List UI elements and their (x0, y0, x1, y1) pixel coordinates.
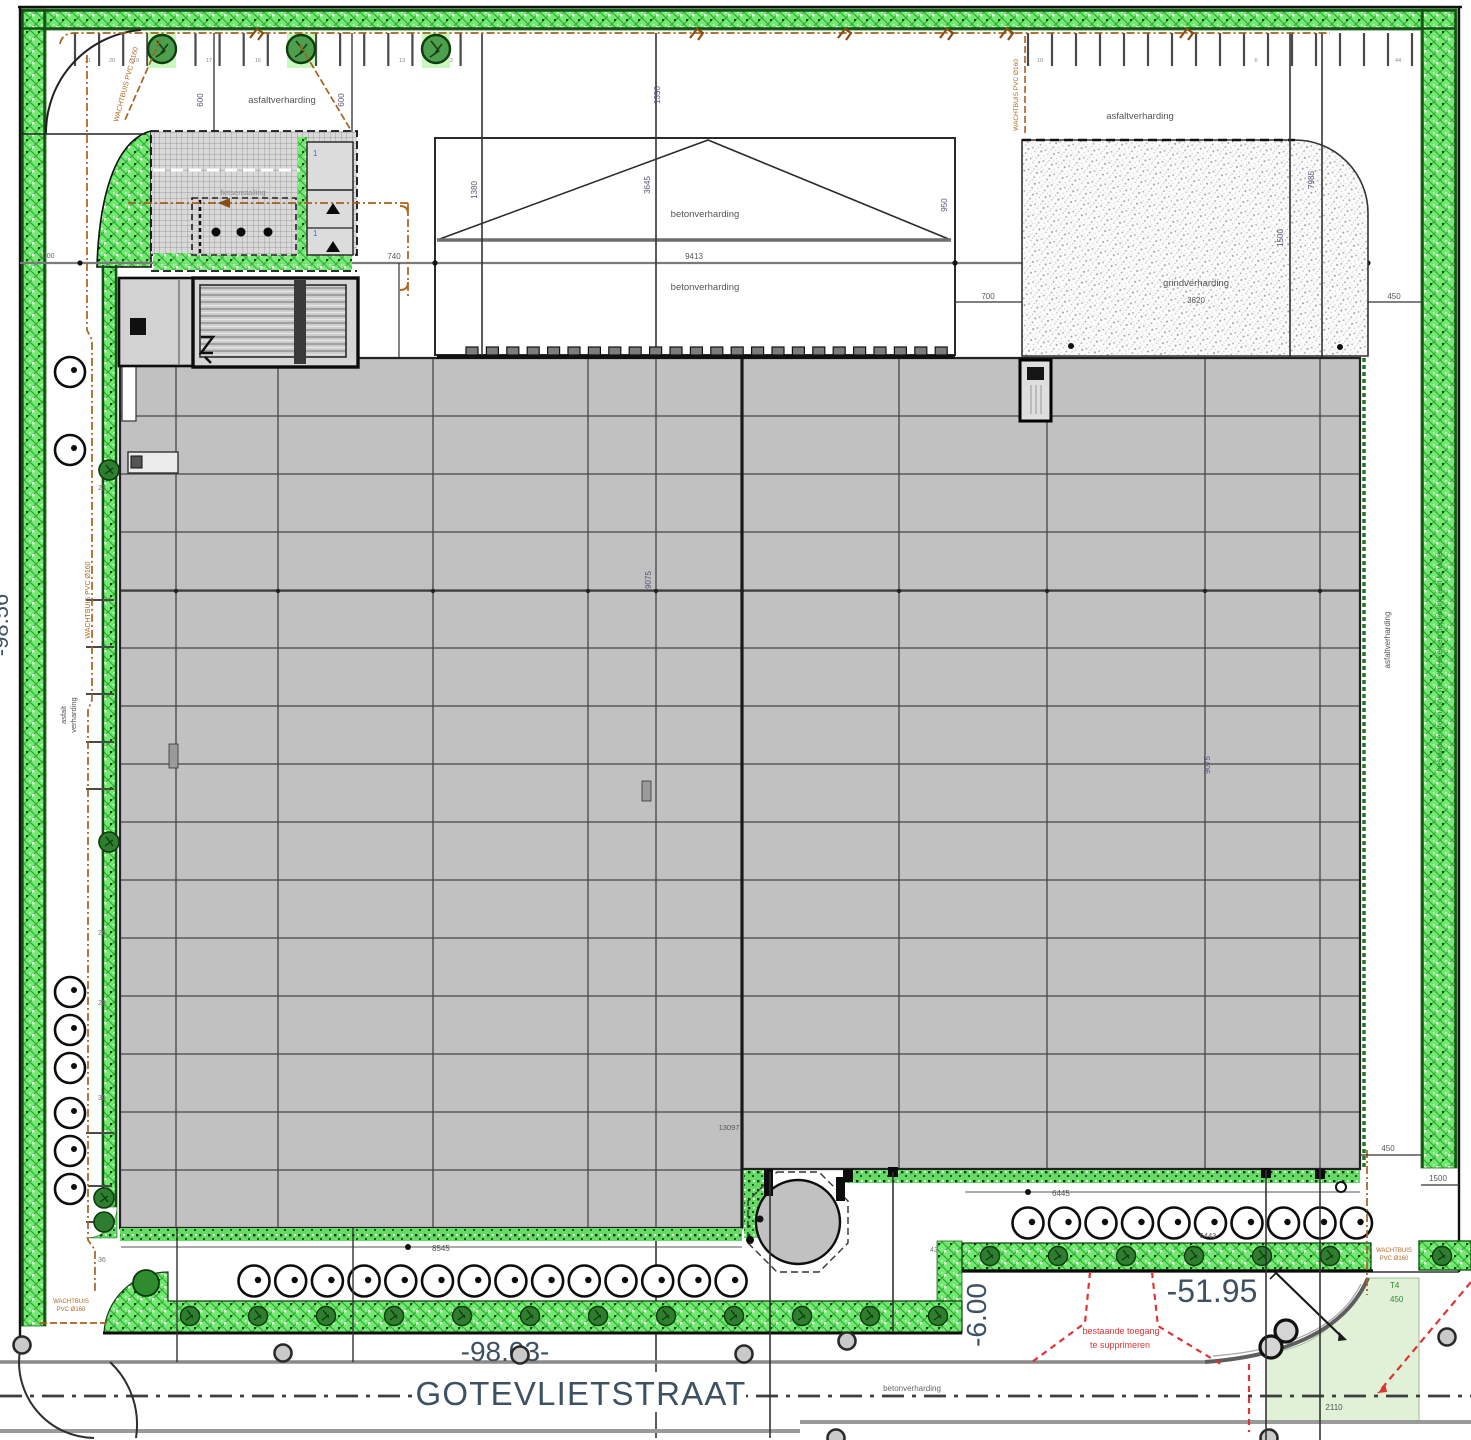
svg-text:29: 29 (98, 1000, 106, 1007)
svg-text:36: 36 (98, 1257, 106, 1264)
svg-text:20: 20 (109, 58, 115, 64)
svg-text:30: 30 (98, 1095, 106, 1102)
svg-text:asfaltverharding: asfaltverharding (1383, 612, 1392, 669)
svg-text:450: 450 (1387, 292, 1401, 301)
svg-text:1: 1 (313, 229, 318, 238)
svg-text:-51.95: -51.95 (1167, 1273, 1258, 1309)
svg-text:3645: 3645 (643, 176, 652, 194)
svg-text:21: 21 (85, 58, 91, 64)
svg-text:1: 1 (313, 149, 318, 158)
svg-text:verharding: verharding (69, 697, 78, 732)
svg-text:44: 44 (1395, 58, 1401, 64)
svg-text:PVC Ø160: PVC Ø160 (57, 1307, 86, 1313)
svg-text:asfalt: asfalt (59, 705, 68, 724)
svg-text:450: 450 (1390, 1295, 1404, 1304)
svg-text:te supprimeren: te supprimeren (1090, 1340, 1150, 1350)
svg-text:17: 17 (206, 58, 212, 64)
svg-text:23: 23 (98, 485, 106, 492)
svg-text:9075: 9075 (1203, 756, 1212, 774)
svg-text:26: 26 (98, 930, 106, 937)
svg-text:asfaltverharding: asfaltverharding (248, 95, 316, 106)
svg-text:450: 450 (1381, 1144, 1395, 1153)
svg-text:betonverharding: betonverharding (671, 209, 740, 220)
svg-text:3620: 3620 (1187, 296, 1205, 305)
svg-text:8545: 8545 (432, 1244, 450, 1253)
svg-text:betonverharding: betonverharding (883, 1384, 941, 1393)
svg-text:10: 10 (1037, 58, 1043, 64)
svg-text:WACHTBUIS PVC Ø160: WACHTBUIS PVC Ø160 (85, 561, 92, 638)
svg-text:-98.03-: -98.03- (461, 1336, 550, 1367)
svg-text:2110: 2110 (1325, 1403, 1343, 1412)
svg-text:13097: 13097 (719, 1123, 740, 1132)
svg-text:6: 6 (1254, 58, 1257, 64)
svg-text:740: 740 (387, 252, 401, 261)
svg-text:9075: 9075 (644, 571, 653, 589)
svg-text:fietsenstalling: fietsenstalling (220, 188, 265, 197)
svg-text:betonverharding: betonverharding (671, 282, 740, 293)
svg-text:WACHTBUIS: WACHTBUIS (1376, 1248, 1412, 1254)
svg-text:1350: 1350 (653, 86, 662, 104)
svg-text:bestaande groenzone met streek: bestaande groenzone met streekeigen bepl… (1435, 548, 1444, 771)
svg-text:9413: 9413 (685, 252, 703, 261)
svg-text:WACHTBUIS PVC Ø160: WACHTBUIS PVC Ø160 (1013, 59, 1020, 131)
svg-text:-6.00: -6.00 (961, 1283, 992, 1347)
svg-text:1380: 1380 (470, 181, 479, 199)
svg-text:grindverharding: grindverharding (1163, 278, 1229, 289)
svg-text:16: 16 (255, 58, 261, 64)
svg-text:1500: 1500 (1276, 229, 1285, 247)
svg-text:43: 43 (930, 1247, 938, 1254)
svg-text:T4: T4 (1390, 1281, 1400, 1290)
svg-text:6445: 6445 (1052, 1189, 1070, 1198)
svg-text:7985: 7985 (1307, 171, 1316, 189)
svg-text:1000: 1000 (39, 253, 55, 260)
svg-text:600: 600 (337, 93, 346, 107)
svg-text:bestaande toegang: bestaande toegang (1082, 1326, 1159, 1336)
svg-text:13: 13 (399, 58, 405, 64)
svg-text:PVC Ø160: PVC Ø160 (1380, 1256, 1409, 1262)
svg-text:WACHTBUIS: WACHTBUIS (53, 1299, 89, 1305)
svg-text:600: 600 (196, 93, 205, 107)
svg-text:-98.56: -98.56 (0, 594, 13, 656)
svg-text:GOTEVLIETSTRAAT: GOTEVLIETSTRAAT (416, 1375, 747, 1412)
svg-text:950: 950 (940, 198, 949, 212)
svg-text:700: 700 (981, 292, 995, 301)
svg-text:1500: 1500 (1429, 1174, 1447, 1183)
svg-text:asfaltverharding: asfaltverharding (1106, 111, 1174, 122)
svg-text:6443: 6443 (1200, 1231, 1217, 1240)
